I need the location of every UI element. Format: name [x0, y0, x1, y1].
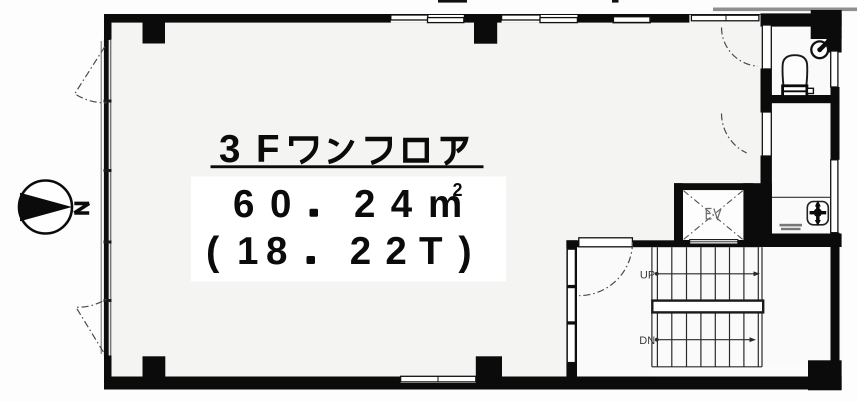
svg-text:UP: UP — [640, 269, 655, 281]
svg-text:2: 2 — [354, 183, 375, 226]
svg-text:(: ( — [206, 230, 220, 274]
svg-text:2: 2 — [350, 230, 371, 273]
svg-text:3: 3 — [219, 128, 240, 171]
svg-text:F: F — [256, 128, 280, 171]
svg-text:4: 4 — [391, 183, 413, 226]
svg-text:2: 2 — [453, 180, 463, 200]
svg-text:0: 0 — [270, 183, 291, 226]
svg-text:2: 2 — [385, 230, 406, 273]
svg-text:DN: DN — [639, 335, 655, 347]
svg-text:): ) — [458, 230, 471, 274]
svg-text:T: T — [419, 230, 443, 273]
svg-text:6: 6 — [233, 183, 254, 226]
svg-text:1: 1 — [237, 230, 258, 273]
svg-text:8: 8 — [266, 230, 287, 273]
